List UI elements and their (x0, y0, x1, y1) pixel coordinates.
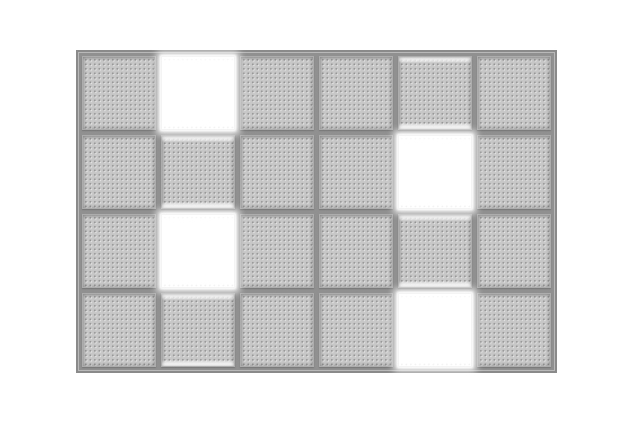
tile-r4-c1[interactable] (82, 293, 156, 367)
tile-r2-c2[interactable] (161, 135, 235, 209)
tile-r2-c1[interactable] (82, 135, 156, 209)
tile-r2-c4[interactable] (319, 135, 393, 209)
tile-r3-c1[interactable] (82, 214, 156, 288)
tile-r3-c2[interactable] (161, 214, 235, 288)
tile-r1-c6[interactable] (477, 56, 551, 130)
tile-r3-c3[interactable] (240, 214, 314, 288)
tile-r4-c4[interactable] (319, 293, 393, 367)
tile-r4-c2[interactable] (161, 293, 235, 367)
tile-r4-c6[interactable] (477, 293, 551, 367)
tile-r1-c5[interactable] (398, 56, 472, 130)
tile-r3-c5[interactable] (398, 214, 472, 288)
tile-r4-c3[interactable] (240, 293, 314, 367)
tile-r4-c5[interactable] (398, 293, 472, 367)
tile-r2-c5[interactable] (398, 135, 472, 209)
tile-r1-c3[interactable] (240, 56, 314, 130)
panel-grid (76, 50, 557, 373)
tile-r2-c6[interactable] (477, 135, 551, 209)
tile-r3-c4[interactable] (319, 214, 393, 288)
tile-r1-c4[interactable] (319, 56, 393, 130)
tile-r2-c3[interactable] (240, 135, 314, 209)
tile-r1-c1[interactable] (82, 56, 156, 130)
tile-r1-c2[interactable] (161, 56, 235, 130)
tile-r3-c6[interactable] (477, 214, 551, 288)
